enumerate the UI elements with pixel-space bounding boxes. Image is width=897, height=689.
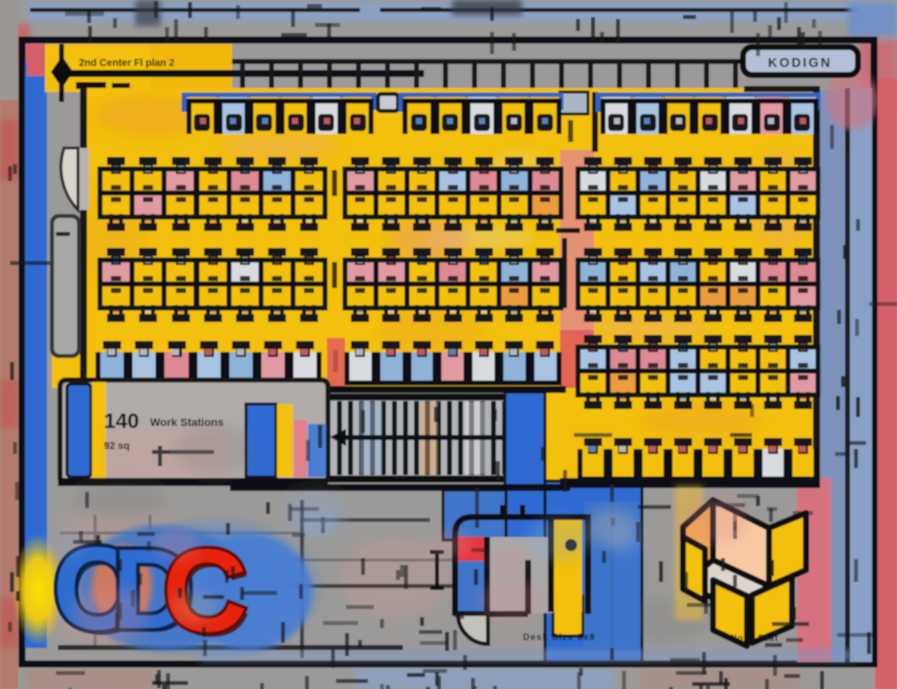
- svg-text:Work Stat: Work Stat: [728, 633, 779, 643]
- svg-text:140: 140: [104, 410, 139, 433]
- svg-text:2nd Center Fl plan 2: 2nd Center Fl plan 2: [79, 58, 175, 69]
- svg-text:92 sq: 92 sq: [104, 441, 130, 452]
- svg-text:KODIGN: KODIGN: [768, 55, 832, 70]
- svg-text:Desk Size 6x8: Desk Size 6x8: [523, 632, 596, 642]
